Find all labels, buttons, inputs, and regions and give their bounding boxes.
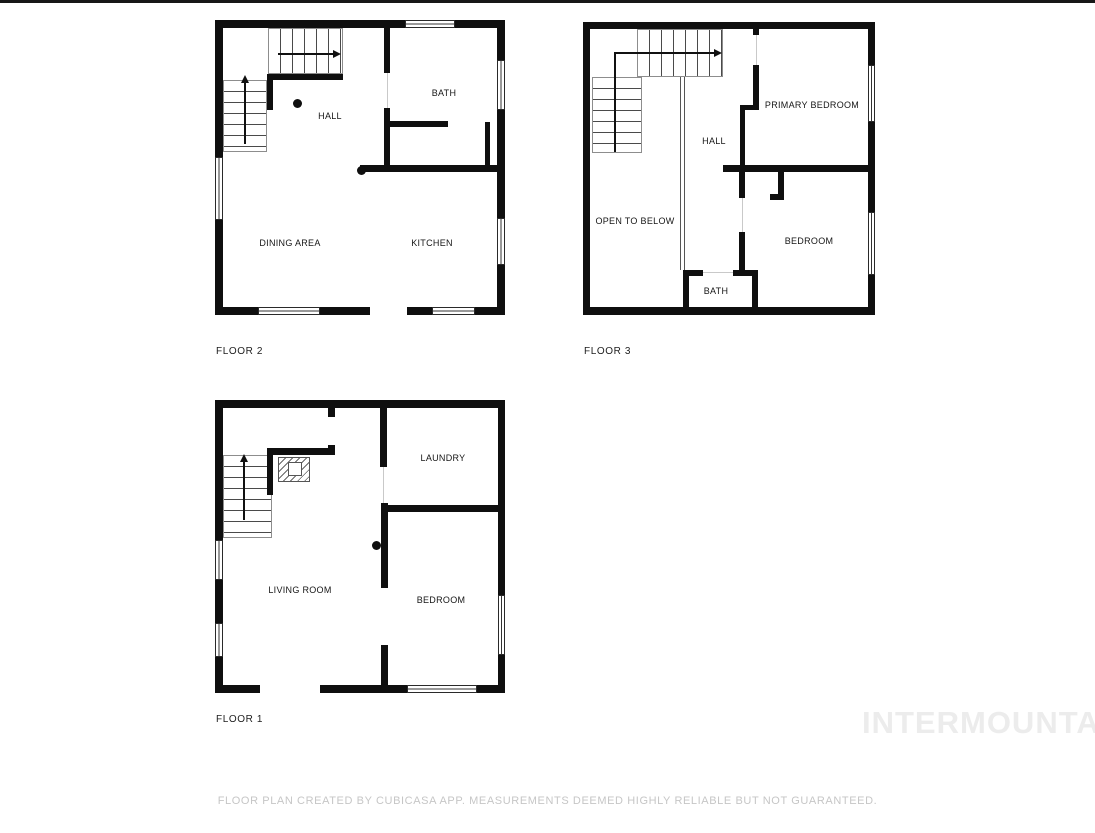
window [868, 65, 875, 122]
wall-bedroom-left-upper [381, 503, 388, 588]
stair-arrow-line [614, 52, 616, 152]
wall-top [215, 400, 505, 408]
room-label-dining-area: DINING AREA [259, 238, 320, 248]
wall-top [215, 20, 505, 28]
wall-bedroom-left-lower [739, 232, 745, 270]
window [497, 218, 505, 265]
window [432, 307, 475, 315]
stair-arrow-up-icon [240, 454, 248, 462]
stairs-upper-run [268, 28, 343, 74]
wall-bottom [583, 307, 875, 315]
room-label-bath: BATH [704, 286, 729, 296]
top-border-bar [0, 0, 1095, 3]
floor-1-plan: LAUNDRY LIVING ROOM BEDROOM [215, 400, 505, 693]
wall-stair-right [267, 448, 273, 495]
floor-3-plan: HALL PRIMARY BEDROOM OPEN TO BELOW BEDRO… [583, 22, 875, 315]
fireplace-flue [288, 462, 302, 476]
wall-alcove-bottom [270, 448, 335, 455]
room-label-bedroom: BEDROOM [417, 595, 466, 605]
window [405, 20, 455, 28]
wall-laundry-left [380, 408, 387, 467]
door-threshold [387, 73, 388, 108]
room-label-open-to-below: OPEN TO BELOW [595, 216, 674, 226]
door-opening [260, 685, 320, 693]
room-label-bath: BATH [432, 88, 457, 98]
door-opening [370, 307, 407, 315]
window [215, 157, 223, 220]
wall-bath-right [752, 270, 758, 307]
disclaimer-text: FLOOR PLAN CREATED BY CUBICASA APP. MEAS… [0, 795, 1095, 807]
wall-laundry-bottom [385, 505, 505, 512]
wall-primary-jog-v [740, 110, 745, 172]
window [868, 212, 875, 275]
wall-bedroom-divider [723, 165, 875, 172]
floor-2-plan: HALL BATH DINING AREA KITCHEN [215, 20, 505, 315]
room-label-primary-bedroom: PRIMARY BEDROOM [765, 100, 859, 110]
room-label-hall: HALL [702, 136, 726, 146]
room-label-hall: HALL [318, 111, 342, 121]
window [498, 595, 505, 655]
floor-plan-page: HALL BATH DINING AREA KITCHEN FLOOR 2 [0, 0, 1095, 833]
wall-primary-bedroom-left [753, 65, 759, 105]
window [258, 307, 320, 315]
stair-arrow-line [278, 53, 333, 55]
window [215, 540, 223, 580]
door-pivot-dot [372, 541, 381, 550]
window [215, 623, 223, 657]
railing-line [680, 77, 681, 270]
wall-alcove-stub-bottom [328, 445, 335, 455]
wall-bedroom-left-lower [381, 645, 388, 693]
wall-left [583, 22, 590, 315]
stair-arrow-right-icon [333, 50, 341, 58]
wall-hall-kitchen-divider [360, 165, 505, 172]
door-threshold [383, 467, 384, 503]
floor-2-label: FLOOR 2 [216, 346, 263, 357]
window [497, 60, 505, 110]
door-pivot-dot [293, 99, 302, 108]
door-threshold [742, 198, 743, 232]
stairs-lower-run [592, 77, 642, 153]
wall-alcove-stub-top [328, 408, 335, 417]
wall-top [583, 22, 875, 29]
wall-bath-top-left [683, 270, 703, 276]
window [407, 685, 477, 693]
stair-arrow-right-icon [714, 49, 722, 57]
stair-arrow-up-icon [241, 75, 249, 83]
stair-arrow-line [243, 462, 245, 520]
stairs-run [223, 455, 272, 538]
stair-arrow-line [614, 52, 714, 54]
wall-closet-foot [770, 194, 784, 200]
room-label-kitchen: KITCHEN [411, 238, 453, 248]
stair-arrow-line [244, 82, 246, 144]
wall-stair-v [267, 74, 273, 110]
room-label-laundry: LAUNDRY [421, 453, 466, 463]
door-threshold [756, 35, 757, 65]
floor-1-label: FLOOR 1 [216, 714, 263, 725]
floor-3-label: FLOOR 3 [584, 346, 631, 357]
railing-line [684, 77, 685, 270]
door-threshold [703, 272, 733, 273]
wall-bath-left-lower [384, 108, 390, 172]
wall-bath-bottom [388, 121, 448, 127]
room-label-bedroom: BEDROOM [785, 236, 834, 246]
door-pivot-dot [357, 166, 366, 175]
wall-bedroom-left-upper [739, 172, 745, 198]
wall-bath-left-upper [384, 28, 390, 73]
room-label-living-room: LIVING ROOM [268, 585, 331, 595]
wall-stair-h [268, 74, 343, 80]
intermountain-watermark: INTERMOUNTAIN [862, 705, 1095, 741]
